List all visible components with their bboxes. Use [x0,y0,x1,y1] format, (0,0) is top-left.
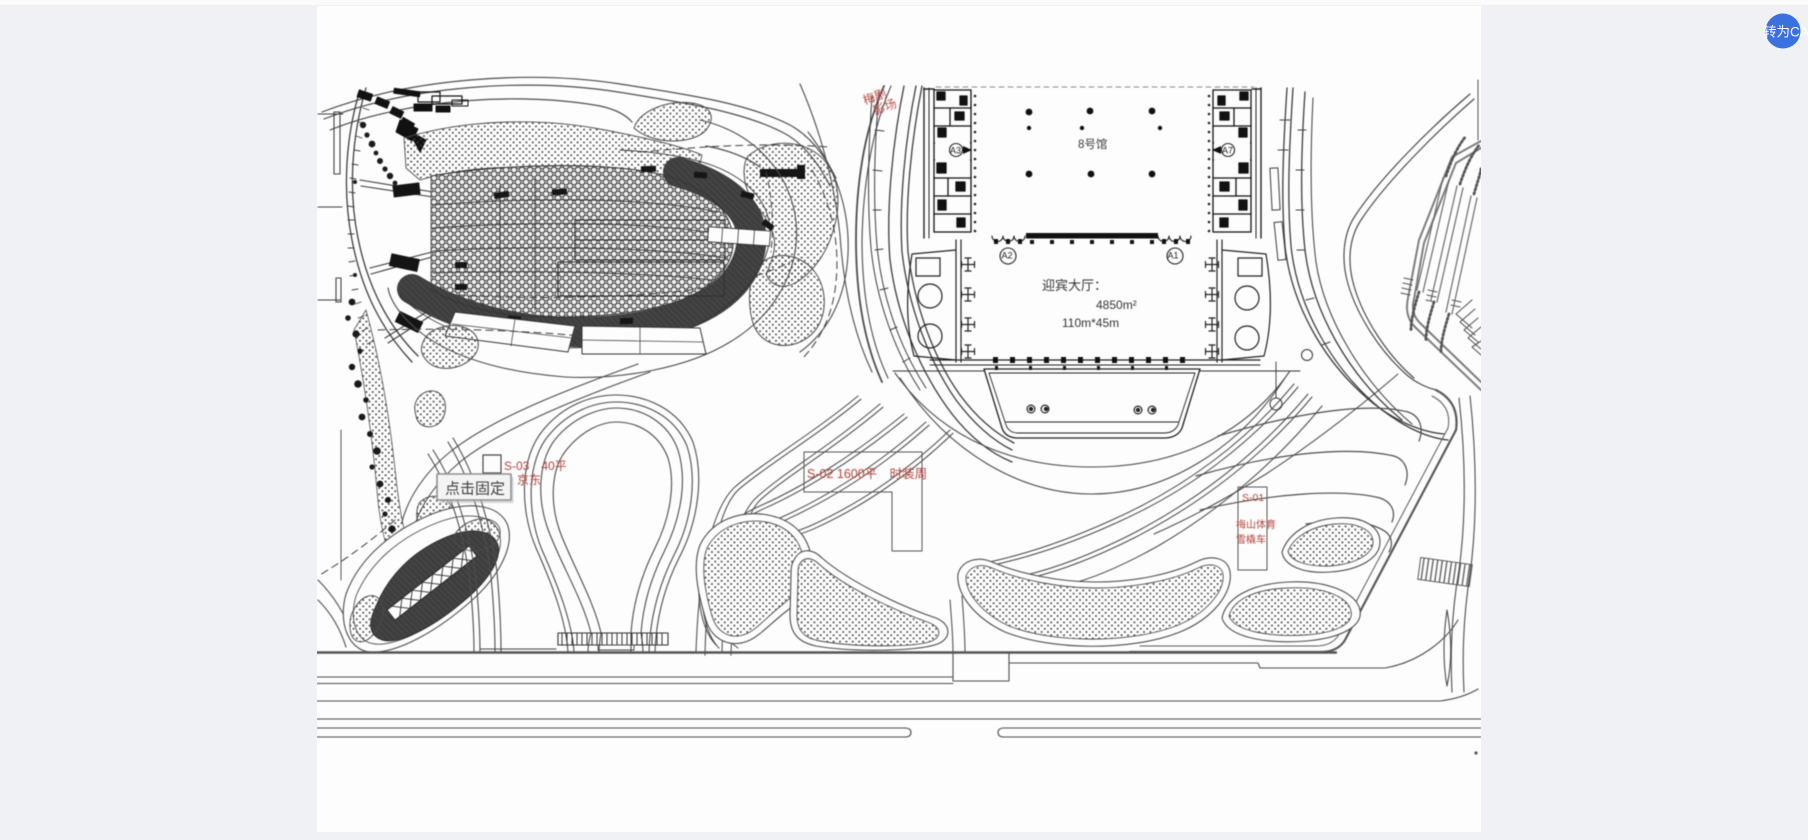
svg-text:A3: A3 [950,146,961,156]
svg-text:转为CA: 转为CA [1763,25,1808,40]
svg-text:点击固定: 点击固定 [445,481,505,498]
svg-text:A2: A2 [1002,251,1013,261]
svg-text:S-01: S-01 [1242,492,1264,504]
svg-text:S-02 1600平 时装周: S-02 1600平 时装周 [807,467,927,481]
svg-text:A1: A1 [1168,251,1179,261]
svg-text:迎宾大厅：: 迎宾大厅： [1042,278,1107,293]
svg-text:梅山体育: 梅山体育 [1236,518,1276,531]
svg-text:8号馆: 8号馆 [1078,137,1107,151]
svg-text:京东: 京东 [517,473,541,487]
svg-text:雪橇车: 雪橇车 [1236,533,1266,546]
svg-text:A7: A7 [1222,146,1233,156]
svg-text:S-03 40平: S-03 40平 [504,459,567,473]
svg-text:4850m²: 4850m² [1096,298,1137,312]
svg-text:110m*45m: 110m*45m [1062,316,1119,330]
